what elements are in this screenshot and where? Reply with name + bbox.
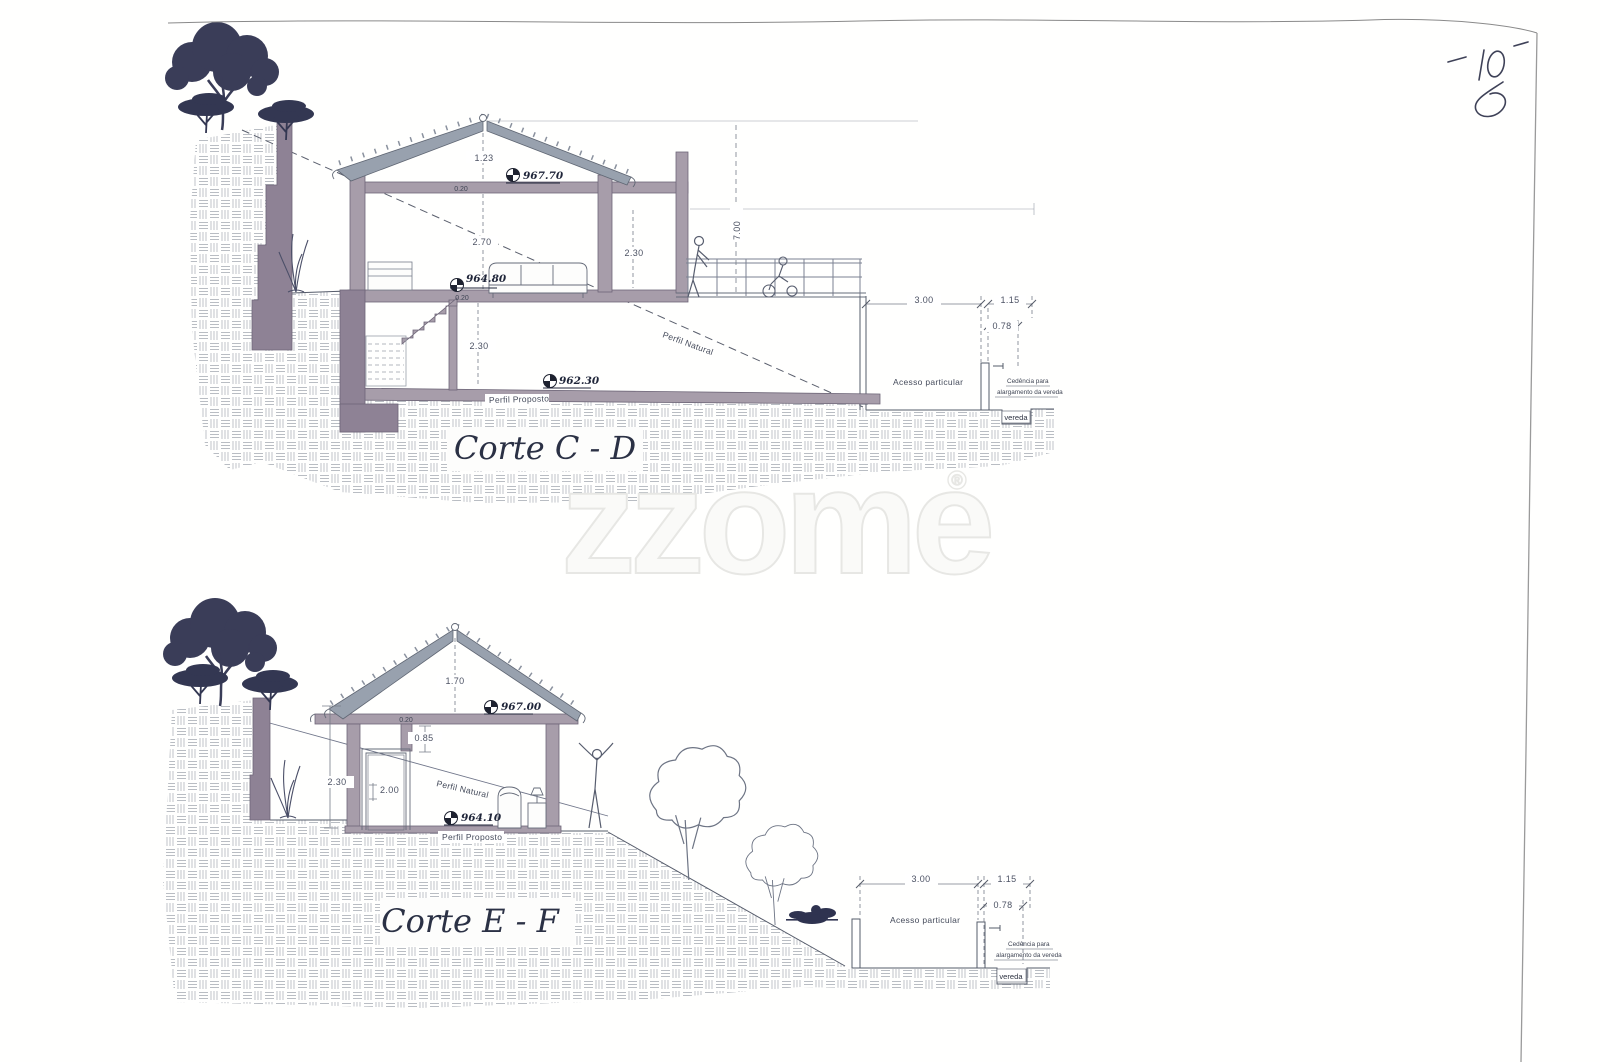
dim-beam-drop-ef: 0.85 (414, 733, 433, 743)
dim-strip-width-cd: 1.15 (1000, 295, 1019, 305)
tree-outline-icon (650, 746, 746, 880)
level-marker-icon (445, 812, 458, 825)
scanned-architectural-drawing: zzome ® Corte C - D Corte E - F (0, 0, 1600, 1062)
person-adult (688, 237, 709, 298)
dim-roof-height-cd: 1.23 (474, 153, 493, 163)
house-section-cd (333, 115, 880, 433)
label-access-ef: Acesso particular (890, 915, 960, 925)
label-cedencia1-ef: Cedência para (1008, 941, 1050, 948)
dim-total-height-cd: 7.00 (732, 221, 742, 240)
label-proposed-profile-ef: Perfil Proposto (442, 832, 502, 842)
dim-roof-height-ef: 1.70 (445, 676, 464, 686)
level-floor-ef: 964.10 (461, 812, 502, 824)
tree-outline-icon (746, 824, 818, 925)
level-marker-icon (507, 169, 520, 182)
retaining-wall-ef (250, 698, 270, 820)
dim-wall-height-ef: 2.30 (327, 777, 346, 787)
watermark-registered: ® (951, 472, 962, 489)
ground-hatch-bottom (163, 698, 1050, 1008)
nightstand (528, 803, 546, 828)
dim-slab-top-ef: 0.20 (399, 717, 413, 724)
bush-icon (172, 664, 228, 704)
level-ridge-cd: 967.70 (523, 170, 564, 182)
dim-access-width-ef: 3.00 (911, 874, 930, 884)
cabinet (368, 262, 412, 290)
label-vereda-ef: vereda (999, 972, 1023, 981)
dark-bush-icon (786, 905, 838, 924)
label-natural-profile-cd: Perfil Natural (661, 329, 715, 357)
label-cedencia1-cd: Cedência para (1007, 378, 1049, 385)
dim-annex-height-cd: 2.30 (624, 248, 643, 258)
level-marker-icon (451, 279, 464, 292)
dim-access-width-cd: 3.00 (914, 295, 933, 305)
ridge-finial-icon (452, 624, 459, 631)
level-marker-icon (544, 375, 557, 388)
cistern (366, 336, 406, 386)
label-cedencia2-cd: alargamento da vereda (997, 389, 1063, 396)
dim-room-height-cd: 2.70 (472, 237, 491, 247)
level-ridge-ef: 967.00 (501, 701, 542, 713)
cactus-icon (271, 760, 300, 818)
section-title-cd: Corte C - D (454, 429, 636, 467)
level-floor-cd: 964.80 (466, 273, 507, 285)
label-cedencia2-ef: alargamento da vereda (996, 952, 1062, 959)
section-title-ef: Corte E - F (381, 902, 561, 940)
label-proposed-profile-cd: Perfil Proposto (489, 393, 549, 405)
label-access-cd: Acesso particular (893, 377, 963, 387)
bush-icon (178, 93, 234, 133)
dim-offset-width-cd: 0.78 (992, 321, 1011, 331)
dim-door-height-ef: 2.00 (380, 785, 399, 795)
label-vereda-cd: vereda (1004, 413, 1028, 422)
dim-lower-height-cd: 2.30 (469, 341, 488, 351)
dim-slab-top-cd: 0.20 (454, 186, 468, 193)
dimension-lines-cd (478, 121, 1036, 386)
dim-strip-width-ef: 1.15 (997, 874, 1016, 884)
house-section-ef (311, 624, 614, 834)
roof-ef (311, 624, 586, 724)
ridge-finial-icon (480, 115, 487, 122)
dim-slab-mid-cd: 0.20 (455, 295, 469, 302)
level-lower-floor-cd: 962.30 (559, 375, 600, 387)
level-marker-icon (485, 701, 498, 714)
roof-cd (333, 115, 636, 188)
bed (498, 787, 546, 828)
dim-offset-width-ef: 0.78 (993, 900, 1012, 910)
person-figure (579, 743, 613, 828)
